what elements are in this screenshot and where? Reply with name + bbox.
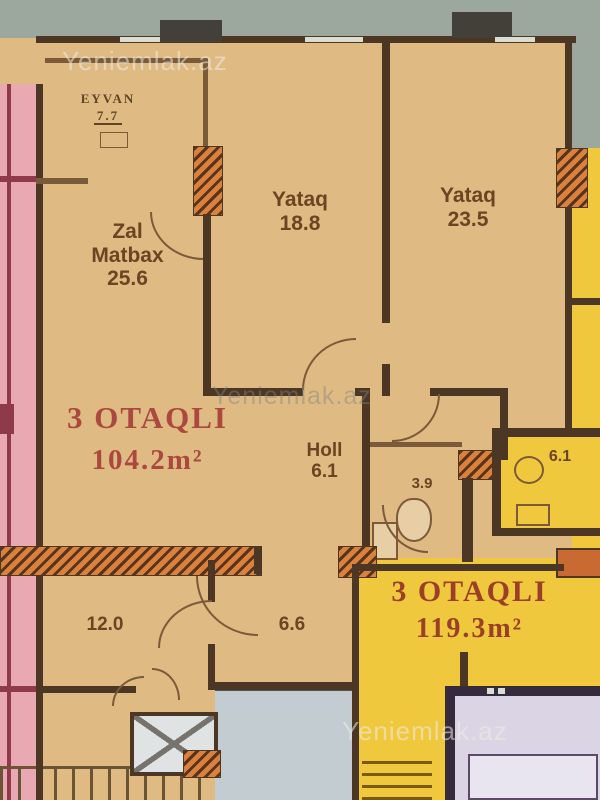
orange-wall-band [556, 548, 600, 578]
wall-right-outer [565, 36, 572, 436]
wall-ybath-bottom [492, 528, 600, 536]
room-label-yataq-18: Yataq 18.8 [240, 188, 360, 235]
door-arc-room12 [158, 600, 212, 648]
window-mark [120, 37, 160, 42]
sink-fixture [516, 504, 550, 526]
room-label-66: 6.6 [262, 614, 322, 635]
stairwell-gray-floor [215, 688, 358, 800]
room-label-holl: Holl 6.1 [282, 440, 367, 483]
room-label-12: 12.0 [70, 614, 140, 635]
wall-lavender-top [445, 686, 600, 696]
room-label-ybath: 6.1 [535, 448, 585, 466]
exterior-right-corner [572, 0, 600, 148]
wall-yellow-apt-top [358, 564, 564, 571]
door-arc-yataq2 [392, 394, 440, 442]
hatched-wall-block [183, 750, 221, 778]
pink-cross-wall [0, 176, 36, 182]
window-mark [495, 37, 535, 42]
window-mark [305, 37, 363, 42]
room-label-eyvan: EYVAN 7.7 [58, 92, 158, 123]
wall-bottom-mid [208, 682, 358, 690]
pink-cross-wall [0, 686, 36, 692]
staircase-yellow [362, 752, 432, 800]
room-name: Zal [55, 220, 200, 244]
wall-band-end [254, 546, 262, 574]
wall-ybath-top [492, 428, 600, 437]
door-arc-small [152, 668, 180, 700]
room-name: Yataq [240, 188, 360, 212]
pink-wall-line [7, 84, 11, 800]
room-label-sanitary: 3.9 [400, 476, 444, 493]
room-area: 7.7 [94, 108, 122, 125]
apartment-type: 3 OTAQLI [40, 402, 255, 435]
wall-corridor [208, 560, 215, 602]
apartment-119-label: 3 OTAQLI 119.3m² [362, 576, 577, 643]
floor-plan: Yeniemlak.az Yeniemlak.az Yeniemlak.az E… [0, 0, 600, 800]
wall-step [500, 388, 508, 460]
hatched-wall-block [556, 148, 588, 208]
wall-yellow-apt-left [352, 564, 359, 800]
apartment-area: 104.2m² [40, 445, 255, 475]
room-area: 23.5 [408, 208, 528, 232]
apartment-area: 119.3m² [362, 614, 577, 643]
room-name: Yataq [408, 184, 528, 208]
balcony-detail-box [100, 132, 128, 148]
door-arc-small [112, 676, 144, 706]
wall-yataq-yataq-low [382, 364, 390, 396]
apartment-type: 3 OTAQLI [362, 576, 577, 608]
wall-strip-cross [572, 298, 600, 305]
room-name: Holl [282, 440, 367, 461]
wall-vestibule-stub [460, 652, 468, 688]
window-mark [498, 688, 505, 694]
wall-segment [36, 178, 88, 184]
wall-zal-yataq [203, 214, 211, 396]
watermark-top: Yeniemlak.az [62, 46, 228, 77]
wall-yataq-yataq [382, 43, 390, 323]
apartment-104-label: 3 OTAQLI 104.2m² [40, 402, 255, 475]
hatched-wall-block [458, 450, 494, 480]
neighbor-apartment-pink [0, 84, 36, 800]
wall-bath-top [370, 442, 462, 447]
hatched-wall-block [193, 146, 223, 216]
lavender-inner-room [468, 754, 598, 800]
pink-wall-stub [0, 404, 14, 434]
room-area: 6.1 [282, 461, 367, 482]
room-area: 18.8 [240, 212, 360, 236]
room-label-yataq-23: Yataq 23.5 [408, 184, 528, 231]
watermark-bottom: Yeniemlak.az [342, 716, 508, 747]
window-mark [487, 688, 494, 694]
room-name: EYVAN [58, 92, 158, 107]
room-area: 25.6 [55, 267, 200, 291]
wall-top-pillar [160, 20, 222, 42]
wall-horizontal-mid [430, 388, 508, 396]
hatched-wall-band [0, 546, 262, 576]
wall-bath-right [462, 478, 473, 562]
wall-top-pillar [452, 12, 512, 38]
room-label-zal-matbax: Zal Matbax 25.6 [55, 220, 200, 291]
room-name: Matbax [55, 244, 200, 268]
wall-ybath-left [492, 428, 501, 536]
